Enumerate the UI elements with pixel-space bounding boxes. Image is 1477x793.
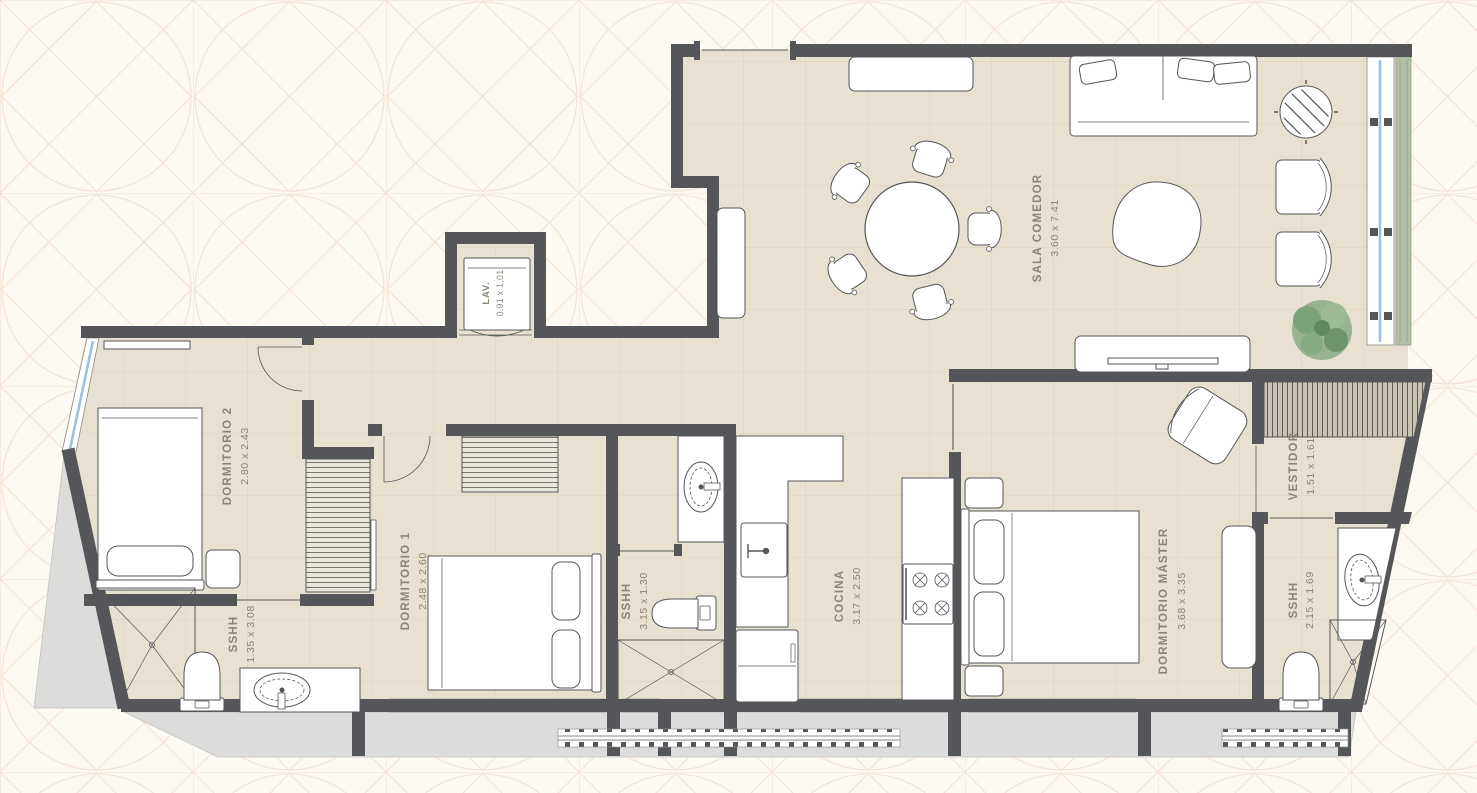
door-jamb	[790, 41, 796, 60]
wall	[1252, 512, 1268, 524]
wall-lav	[445, 232, 457, 338]
pillow	[552, 562, 580, 620]
nightstand	[965, 666, 1003, 696]
door-jamb	[612, 544, 620, 556]
wall	[302, 338, 314, 345]
label-dormitorio-master: DORMITORIO MÁSTER	[1157, 528, 1170, 675]
faucet	[1365, 576, 1381, 583]
bed	[96, 408, 204, 590]
stove	[903, 564, 953, 624]
wall	[724, 424, 736, 699]
sofa-pillow	[1177, 58, 1215, 83]
terrace-post	[948, 712, 961, 756]
vanity	[240, 668, 360, 712]
wall	[671, 44, 683, 182]
faucet	[704, 483, 720, 490]
dining-table	[865, 182, 959, 276]
terrace-post	[1138, 712, 1151, 756]
closet	[1264, 382, 1426, 437]
dims-sshh-2: 3.15 x 1.30	[638, 572, 650, 629]
armchair	[1276, 158, 1331, 216]
sofa-pillow	[1213, 61, 1251, 85]
planter-strip	[1396, 57, 1411, 345]
pillow	[107, 546, 193, 576]
label-dormitorio-1: DORMITORIO 1	[400, 532, 412, 631]
wall	[790, 44, 1412, 57]
bed	[961, 509, 1139, 665]
dims-sshh-master: 2.15 x 1.69	[1304, 571, 1316, 628]
dims-dormitorio-1: 2.48 x 2.60	[417, 552, 429, 609]
toilet	[1279, 652, 1323, 711]
wardrobe	[306, 459, 370, 592]
nightstand	[965, 478, 1003, 508]
label-sshh-2: SSHH	[621, 583, 633, 620]
tv-stand	[1156, 364, 1168, 369]
toilet	[180, 652, 224, 711]
bed	[428, 554, 601, 692]
wall	[534, 326, 719, 338]
pillow	[552, 630, 580, 688]
fridge	[736, 630, 798, 702]
dresser	[1222, 526, 1256, 668]
label-dormitorio-2: DORMITORIO 2	[222, 407, 234, 506]
dims-dormitorio-master: 3.68 x 3.35	[1176, 572, 1188, 629]
label-sshh-master: SSHH	[1288, 582, 1300, 619]
fridge-handle	[791, 644, 795, 662]
sideboard	[849, 57, 973, 91]
wall	[81, 326, 451, 338]
coffee-table	[1113, 182, 1201, 267]
label-lav: LAV.	[481, 281, 492, 304]
dims-cocina: 3.17 x 2.50	[851, 567, 863, 624]
vanity	[678, 436, 724, 542]
wall	[368, 424, 382, 436]
dining-chair	[968, 207, 1001, 252]
wall	[1252, 382, 1264, 444]
wall	[302, 400, 314, 448]
wall	[1335, 512, 1412, 524]
sofa	[1070, 56, 1257, 136]
armchair	[1276, 230, 1331, 288]
wall	[302, 447, 374, 459]
tv-console	[1075, 336, 1250, 372]
door-jamb	[694, 41, 700, 60]
kitchen-sink	[741, 523, 787, 577]
headboard	[592, 554, 601, 692]
console-table	[717, 208, 745, 318]
plant	[1292, 300, 1352, 360]
toilet	[652, 596, 716, 630]
wall-lav	[534, 232, 546, 338]
apartment-floor-plan: DORMITORIO 2 2.80 x 2.43 DORMITORIO 1 2.…	[0, 0, 1477, 793]
label-vestidor: VESTIDOR	[1288, 432, 1300, 500]
dims-sala-comedor: 3.60 x 7.41	[1049, 199, 1061, 256]
wall-lav	[445, 232, 546, 244]
label-sala-comedor: SALA COMEDOR	[1032, 174, 1044, 283]
wardrobe	[462, 436, 558, 492]
label-cocina: COCINA	[834, 570, 846, 623]
wall	[446, 424, 736, 436]
dims-sshh-1: 1.35 x 3.08	[245, 605, 257, 662]
wall	[300, 594, 374, 606]
wall	[84, 594, 237, 606]
terrace-post	[352, 712, 365, 756]
room-vestidor	[1264, 382, 1426, 437]
tv	[1108, 358, 1218, 364]
door-jamb	[674, 544, 682, 556]
faucet	[278, 693, 285, 709]
headboard	[961, 509, 969, 665]
dims-lav: 0.91 x 1.01	[495, 270, 505, 317]
pillow	[974, 592, 1004, 656]
tv	[104, 341, 190, 349]
dims-vestidor: 1.51 x 1.61	[1305, 437, 1317, 494]
pillow	[974, 520, 1004, 584]
nightstand	[206, 550, 240, 588]
floorplan-canvas: DORMITORIO 2 2.80 x 2.43 DORMITORIO 1 2.…	[0, 0, 1477, 793]
wardrobe-door	[371, 520, 376, 590]
dims-dormitorio-2: 2.80 x 2.43	[239, 427, 251, 484]
label-sshh-1: SSHH	[228, 616, 240, 653]
wall	[606, 424, 618, 699]
